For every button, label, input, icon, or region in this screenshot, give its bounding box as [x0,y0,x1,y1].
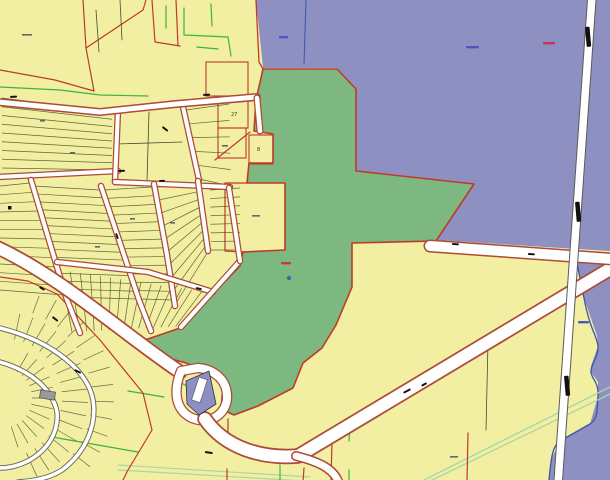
parcel-number-mark [22,34,32,36]
parcel-number-mark [252,215,260,217]
parcel-number-mark [170,222,175,224]
road-name-mark [118,170,125,172]
parcel-number-mark [450,456,458,458]
parcel-number-mark [222,145,228,147]
survey-marker [8,206,12,210]
blue-text-mark [578,321,589,323]
parcel-label-8: 8 [257,147,260,153]
map-layers [0,0,610,480]
parcel-map: 27 8 [0,0,610,480]
road-name-mark [159,180,165,182]
blue-text-mark [279,36,288,38]
blue-text-mark [466,46,479,48]
parcel-number-mark [70,152,75,154]
well-point-marker [287,276,291,280]
road-name-mark [528,253,535,255]
parcel-number-mark [130,218,135,220]
red-text-mark [543,42,555,44]
parcel-number-mark [40,120,45,122]
road-name-mark [452,243,459,245]
parcel-label-27: 27 [231,112,237,118]
parcel-number-mark [95,246,100,248]
map-canvas[interactable]: 27 8 [0,0,610,480]
red-text-mark [281,262,291,264]
